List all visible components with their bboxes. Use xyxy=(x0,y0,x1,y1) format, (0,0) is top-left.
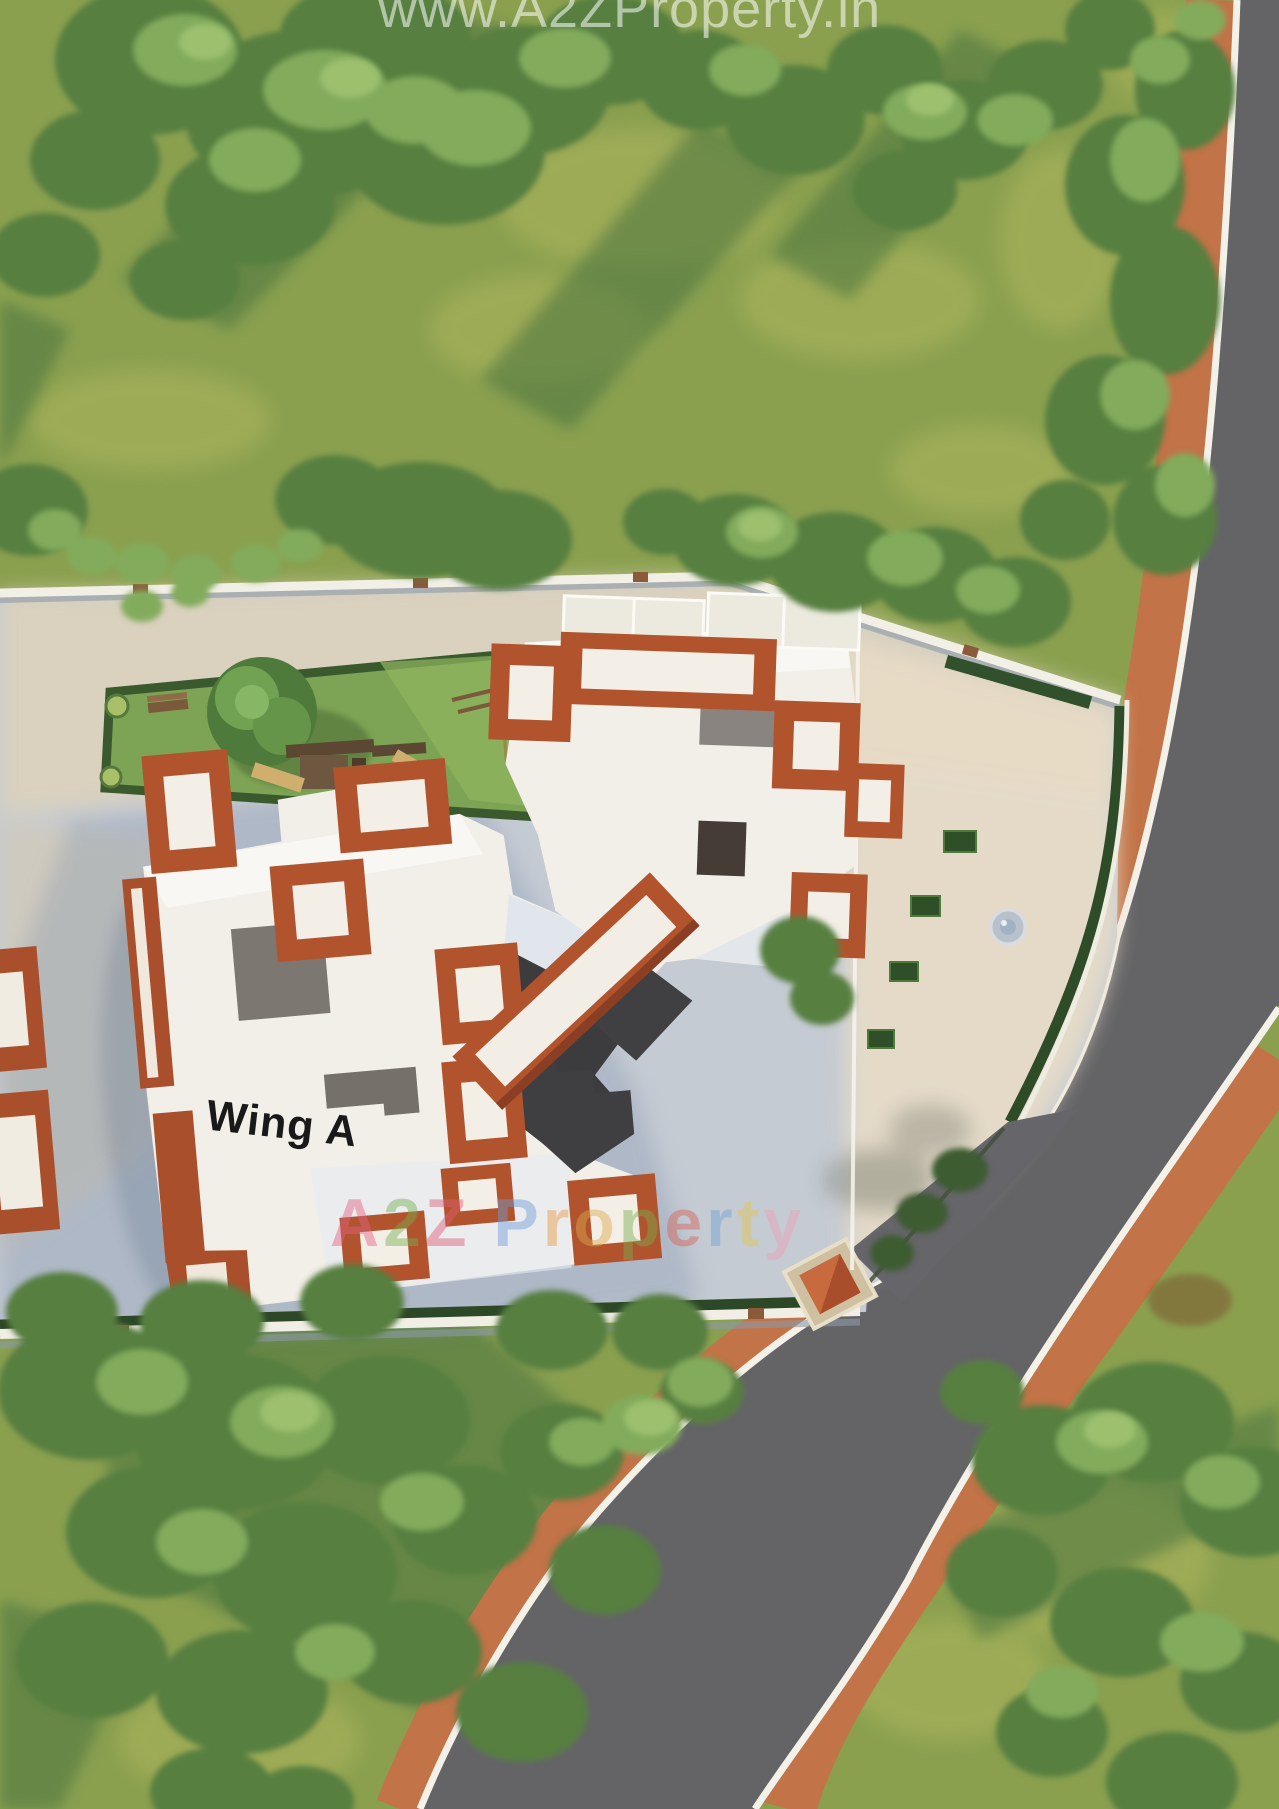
brand-letter: A xyxy=(330,1185,383,1261)
brand-letter: e xyxy=(664,1185,706,1261)
brand-letter: o xyxy=(573,1185,619,1261)
top-url-watermark: www.A2ZProperty.in xyxy=(378,0,881,40)
brand-letter: p xyxy=(619,1185,665,1261)
site-plan-render: www.A2ZProperty.in A2Z Property Wing A xyxy=(0,0,1279,1809)
brand-letter: r xyxy=(543,1185,573,1261)
round-bush xyxy=(101,767,121,787)
sidewalk-shade xyxy=(1148,1274,1232,1326)
brand-letter: P xyxy=(493,1185,542,1261)
brand-letter: r xyxy=(706,1185,736,1261)
brand-letter: Z xyxy=(425,1185,471,1261)
brand-watermark: A2Z Property xyxy=(330,1184,805,1262)
round-bush xyxy=(106,695,128,717)
brand-letter: y xyxy=(763,1185,805,1261)
dark-shaft xyxy=(697,821,747,877)
fountain xyxy=(991,910,1025,944)
brand-letter: t xyxy=(737,1185,764,1261)
brand-letter: 2 xyxy=(383,1185,425,1261)
brand-letter xyxy=(470,1185,493,1261)
scene-canvas xyxy=(0,0,1279,1809)
